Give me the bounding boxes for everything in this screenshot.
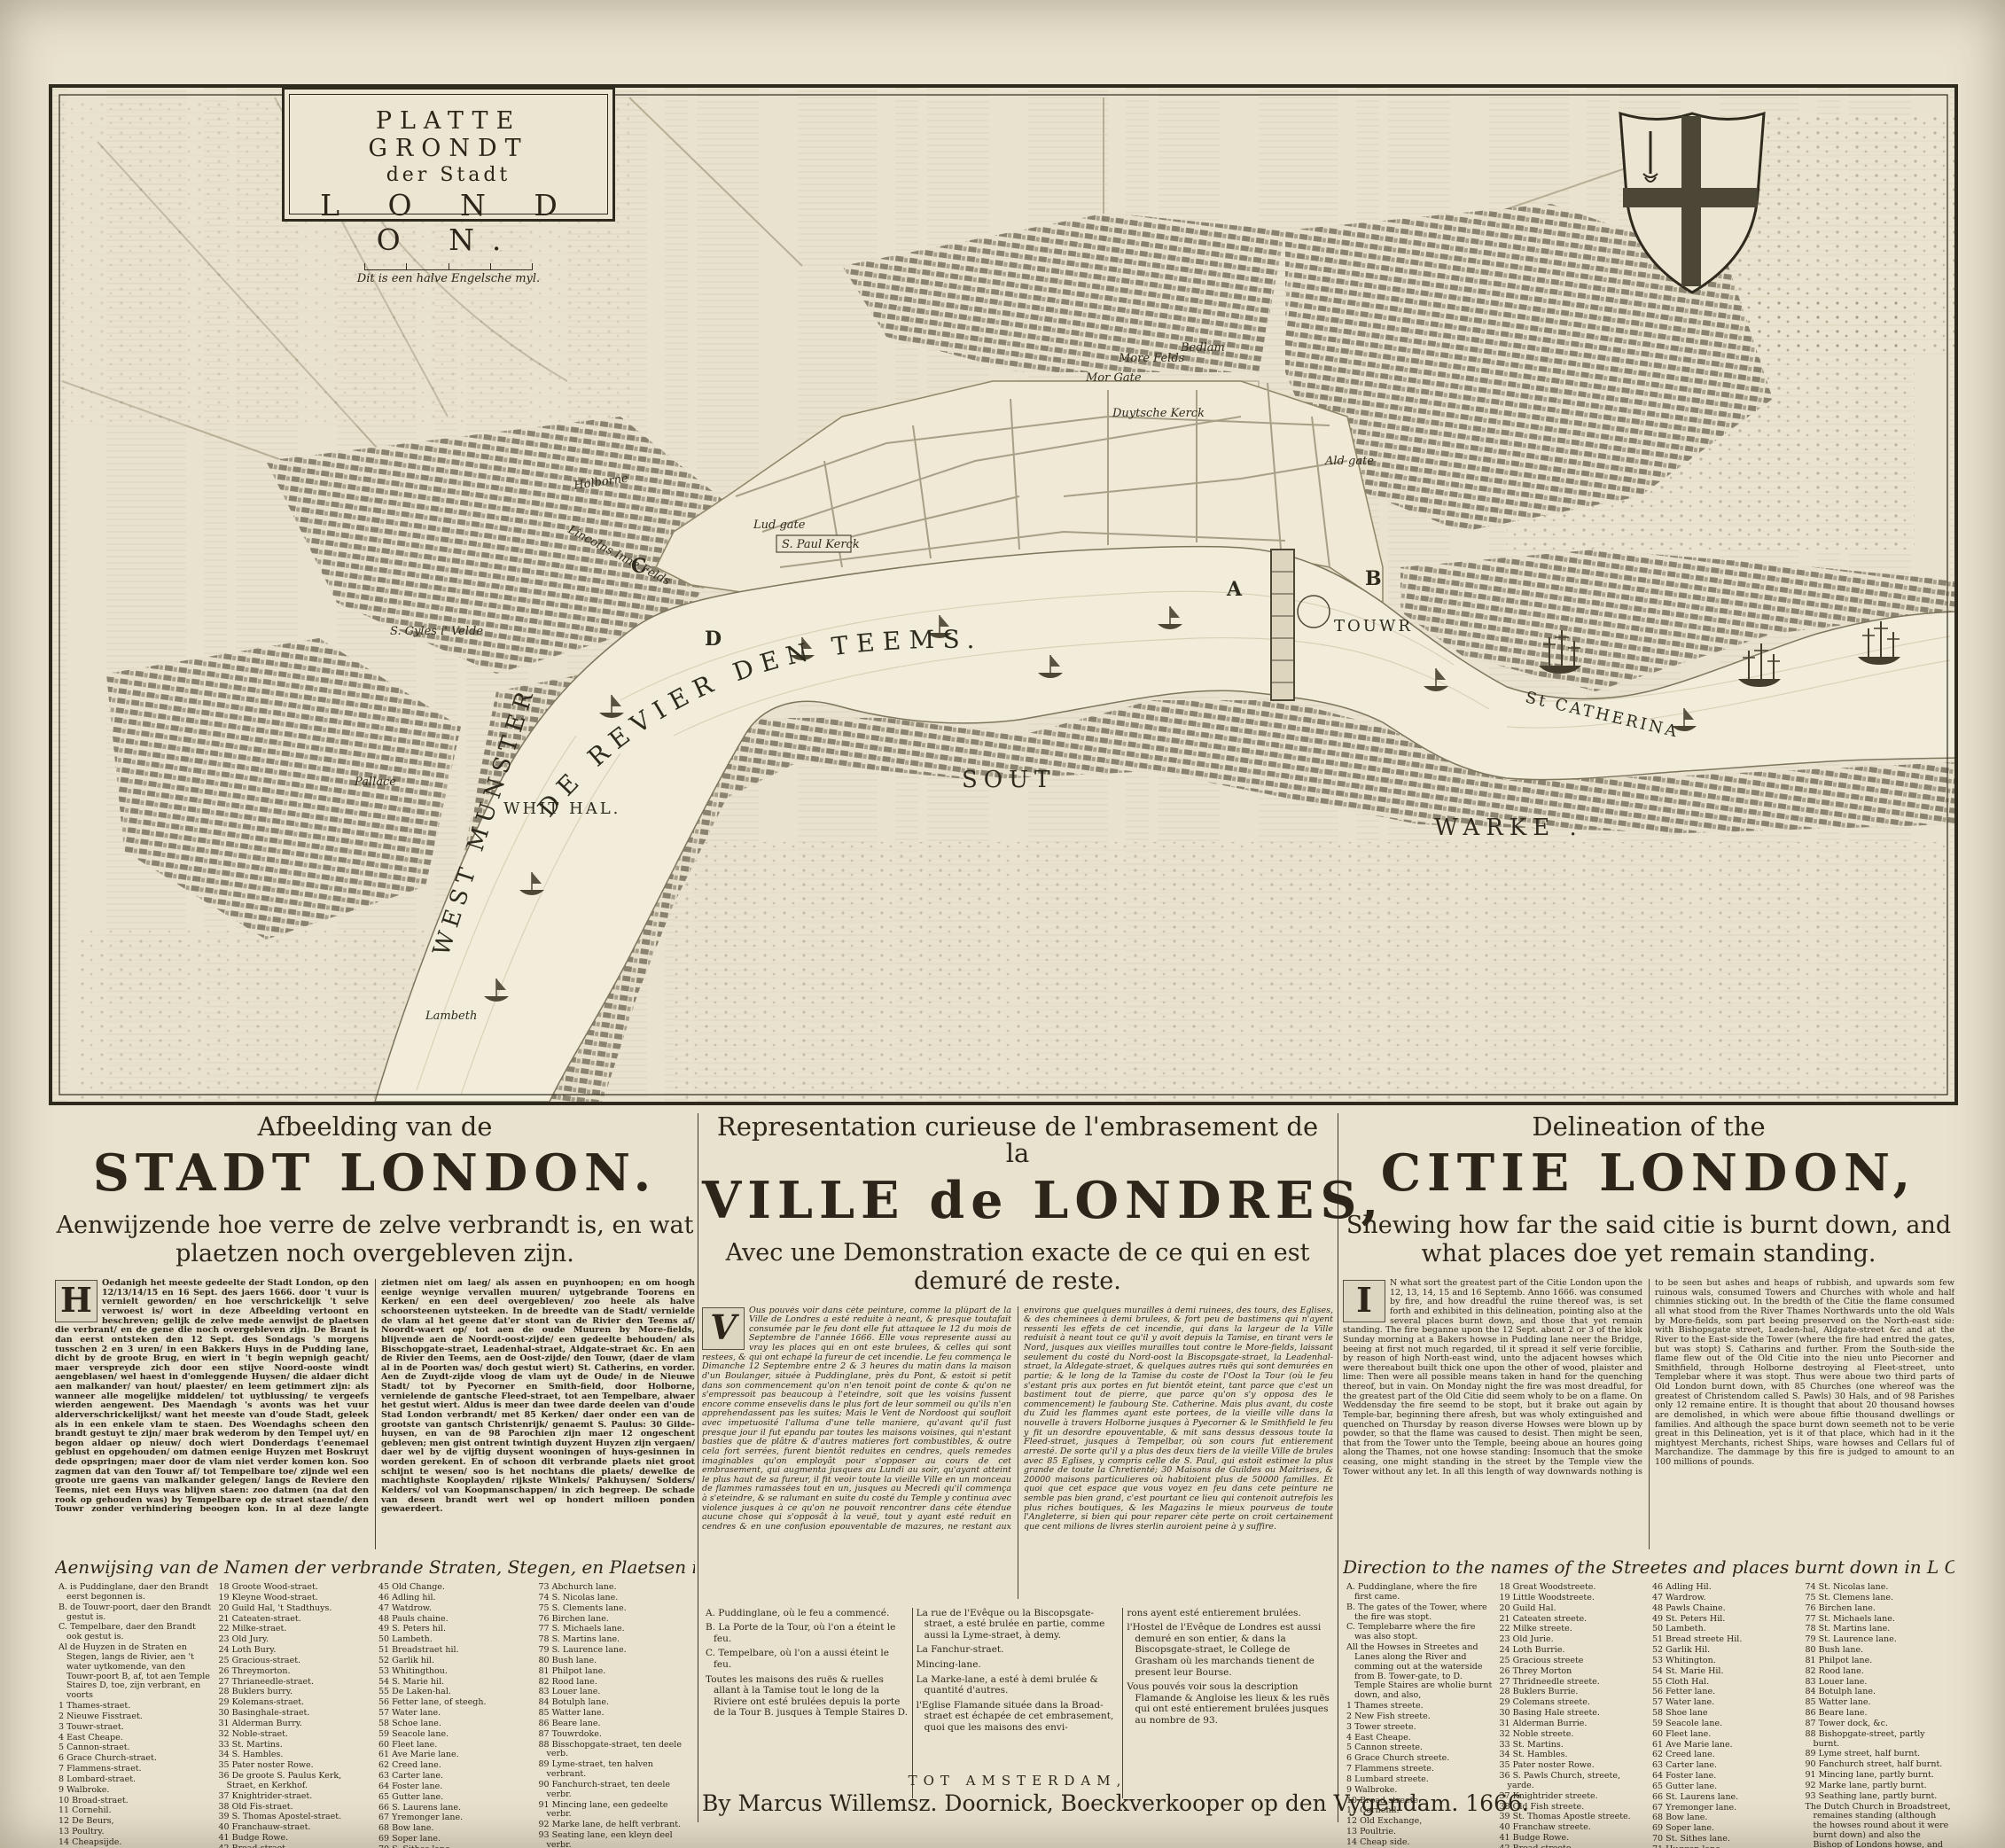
column-dutch: Afbeelding van de STADT LONDON. Aenwijze… xyxy=(55,1113,695,1848)
list-item: 66 St. Laurens lane. xyxy=(1652,1793,1798,1803)
list-item: 6 Grace Church-straet. xyxy=(59,1754,212,1764)
list-item: 74 St. Nicolas lane. xyxy=(1806,1583,1952,1593)
list-item: 31 Alderman Burrie. xyxy=(1500,1719,1646,1729)
list-item: 63 Carter lane. xyxy=(378,1772,532,1782)
list-item: 67 Yremonger lane. xyxy=(1652,1804,1798,1813)
dutch-list-col1: A. is Puddinglane, daer den Brandt eerst… xyxy=(55,1583,215,1848)
list-item: 92 Marke lane, de helft verbrant. xyxy=(539,1821,692,1830)
list-item: 25 Gracious-straet. xyxy=(219,1657,372,1666)
list-item: 51 Bread streete Hil. xyxy=(1652,1635,1798,1645)
english-list-col1: A. Puddinglane, where the fire first cam… xyxy=(1343,1583,1496,1848)
list-item: 32 Noble streete. xyxy=(1500,1730,1646,1740)
list-item: 53 Whitingthou. xyxy=(378,1667,532,1677)
list-item: 6 Grace Church streete. xyxy=(1346,1754,1493,1764)
list-item: 45 Old Change. xyxy=(378,1583,532,1593)
list-item: 81 Philpot lane. xyxy=(539,1667,692,1677)
list-item: C. Tempelbare, daer den Brandt ook gestu… xyxy=(59,1623,212,1642)
list-item: 52 Garlik hil. xyxy=(378,1657,532,1666)
list-item: 37 Knightrider-straet. xyxy=(219,1792,372,1802)
imprint-publisher: By Marcus Willemsz. Doornick, Boeckverko… xyxy=(702,1790,1333,1816)
list-item: 56 Fetter lane, of steegh. xyxy=(378,1698,532,1708)
map-panel: DE REVIER DEN TEEMS. WHIT HAL. WEST MUNS… xyxy=(0,0,2005,1108)
list-item: 8 Lombard-straet. xyxy=(59,1775,212,1785)
list-item: 52 Garlik Hil. xyxy=(1652,1646,1798,1656)
list-item: 60 Fleet lane. xyxy=(378,1741,532,1751)
list-item: 55 Cloth Hal. xyxy=(1652,1678,1798,1688)
list-item: 25 Gracious streete xyxy=(1500,1657,1646,1666)
list-item: 86 Beare lane. xyxy=(539,1719,692,1729)
french-list-col1: A. Puddinglane, où le feu a commencé.B. … xyxy=(702,1608,912,1798)
list-item: 7 Flammens-straet. xyxy=(59,1765,212,1774)
list-item: 29 Kolemans-straet. xyxy=(219,1698,372,1708)
column-rule-left xyxy=(698,1113,698,1822)
list-item: 64 Foster lane. xyxy=(1652,1772,1798,1782)
list-item: 64 Foster lane. xyxy=(378,1782,532,1792)
list-item: 27 Thrianeedle-straet. xyxy=(219,1678,372,1688)
list-item: 11 Cornehil. xyxy=(59,1806,212,1816)
list-item: 34 S. Hambles. xyxy=(219,1751,372,1760)
list-item: 46 Adling hil. xyxy=(378,1594,532,1603)
list-item: 18 Groote Wood-straet. xyxy=(219,1583,372,1593)
list-item: 42 Bread-straet. xyxy=(219,1844,372,1848)
list-item: 5 Cannon streete. xyxy=(1346,1743,1493,1753)
list-item: 77 St. Michaels lane. xyxy=(1806,1615,1952,1625)
list-item: 21 Cateaten streete. xyxy=(1500,1615,1646,1625)
french-body-text: Ous pouvés voir dans cète peinture, comm… xyxy=(702,1306,1333,1532)
english-dropcap: I xyxy=(1343,1280,1385,1322)
english-body: I N what sort the greatest part of the C… xyxy=(1343,1279,1954,1549)
french-subtitle: Avec une Demonstration exacte de ce qui … xyxy=(702,1239,1333,1296)
list-item: 13 Poultrie. xyxy=(1346,1828,1493,1837)
list-item: A. Puddinglane, où le feu a commencé. xyxy=(706,1608,909,1619)
list-item: 23 Old Jury. xyxy=(219,1635,372,1645)
list-item: 22 Milke streete. xyxy=(1500,1625,1646,1634)
list-item: 3 Touwr-straet. xyxy=(59,1723,212,1733)
label-moorfields: More Felds xyxy=(1118,352,1185,365)
list-item: 89 Lyme-straet, ten halven verbrant. xyxy=(539,1760,692,1780)
list-item: 76 Birchen lane. xyxy=(539,1615,692,1625)
list-item: 3 Tower streete. xyxy=(1346,1723,1493,1733)
list-item: 40 Franchauw-straet. xyxy=(219,1823,372,1833)
french-body: V Ous pouvés voir dans cète peinture, co… xyxy=(702,1306,1333,1599)
list-item: 54 S. Marie hil. xyxy=(378,1678,532,1688)
list-item: 29 Colemans streete. xyxy=(1500,1698,1646,1708)
st-pauls-label: S. Paul Kerck xyxy=(776,535,860,552)
list-item: 89 Lyme street, half burnt. xyxy=(1806,1750,1952,1759)
list-item: 86 Beare lane. xyxy=(1806,1709,1952,1719)
dutch-list-col4: 73 Abchurch lane.74 S. Nicolas lane.75 S… xyxy=(535,1583,696,1848)
label-whitehall: WHIT HAL. xyxy=(503,799,620,818)
list-item: 9 Walbroke. xyxy=(59,1786,212,1796)
list-item: 27 Thridneedle streete. xyxy=(1500,1678,1646,1688)
english-list-col4: 74 St. Nicolas lane.75 St. Clemens lane.… xyxy=(1802,1583,1955,1848)
list-item: 19 Little Woodstreete. xyxy=(1500,1594,1646,1603)
column-french: Representation curieuse de l'embrasement… xyxy=(702,1113,1333,1798)
list-item: All the Howses in Streetes and Lanes alo… xyxy=(1346,1643,1493,1701)
list-item: 81 Philpot lane. xyxy=(1806,1657,1952,1666)
marker-a: A xyxy=(1226,578,1243,601)
list-item: 93 Seathing lane, partly burnt. xyxy=(1806,1792,1952,1802)
label-lambeth: Lambeth xyxy=(425,1010,477,1023)
list-item: 9 Walbroke. xyxy=(1346,1786,1493,1796)
list-item: 67 Yremonger lane. xyxy=(378,1813,532,1823)
list-item: Mincing-lane. xyxy=(917,1659,1120,1671)
list-item: 50 Lambeth. xyxy=(1652,1625,1798,1634)
list-item: 51 Breadstraet hil. xyxy=(378,1646,532,1656)
scale-bar xyxy=(364,262,533,270)
map-title-line2: der Stadt xyxy=(290,164,607,186)
list-item: 61 Ave Marie lane. xyxy=(1652,1741,1798,1751)
dutch-body: H Oedanigh het meeste gedeelte der Stadt… xyxy=(55,1279,695,1549)
label-pallace: Pallace xyxy=(354,776,396,789)
list-item: Toutes les maisons des ruës & ruelles al… xyxy=(706,1674,909,1719)
dutch-title: STADT LONDON. xyxy=(55,1143,695,1203)
label-dutch-church: Duytsche Kerck xyxy=(1112,407,1205,420)
list-item: 46 Adling Hil. xyxy=(1652,1583,1798,1593)
list-item: 40 Franchaw streete. xyxy=(1500,1823,1646,1833)
list-item: 68 Bow lane. xyxy=(378,1824,532,1834)
list-item: 75 St. Clemens lane. xyxy=(1806,1594,1952,1603)
list-item: 57 Water lane. xyxy=(1652,1698,1798,1708)
list-item: C. Tempelbare, où l'on a aussi éteint le… xyxy=(706,1648,909,1670)
dutch-list-col3: 45 Old Change.46 Adling hil.47 Watdrow.4… xyxy=(375,1583,535,1848)
french-head: Representation curieuse de l'embrasement… xyxy=(702,1113,1333,1167)
list-item: 75 S. Clements lane. xyxy=(539,1604,692,1614)
dutch-street-list: A. is Puddinglane, daer den Brandt eerst… xyxy=(55,1583,695,1848)
list-item: 78 St. Martins lane. xyxy=(1806,1625,1952,1634)
list-item: A. is Puddinglane, daer den Brandt eerst… xyxy=(59,1583,212,1602)
list-item: C. Templebarre where the fire was also s… xyxy=(1346,1623,1493,1642)
list-item: 80 Bush lane. xyxy=(1806,1646,1952,1656)
list-item: 48 Pawls Chaine. xyxy=(1652,1604,1798,1614)
imprint-city: TOT AMSTERDAM, xyxy=(702,1773,1333,1789)
list-item: rons ayent esté entierement brulées. xyxy=(1127,1608,1330,1619)
list-item: 90 Fanchurch street, half burnt. xyxy=(1806,1760,1952,1770)
list-item: 60 Fleet lane. xyxy=(1652,1730,1798,1740)
list-item: B. The gates of the Tower, where the fir… xyxy=(1346,1603,1493,1623)
list-item: 4 East Cheape. xyxy=(1346,1734,1493,1743)
list-item: 36 De groote S. Paulus Kerk, Straet, en … xyxy=(219,1772,372,1791)
list-item: 36 S. Pawls Church, streete, yarde. xyxy=(1500,1772,1646,1791)
english-street-list: A. Puddinglane, where the fire first cam… xyxy=(1343,1583,1954,1848)
list-item: A. Puddinglane, where the fire first cam… xyxy=(1346,1583,1493,1602)
title-cartouche: PLATTE GRONDT der Stadt L O N D O N. Dit… xyxy=(282,87,615,222)
list-item: 26 Threy Morton xyxy=(1500,1667,1646,1677)
list-item: 87 Tower dock, &c. xyxy=(1806,1719,1952,1729)
english-list-col3: 46 Adling Hil.47 Wardrow.48 Pawls Chaine… xyxy=(1649,1583,1802,1848)
list-item: 59 Seacole lane. xyxy=(378,1730,532,1740)
list-item: 92 Marke lane, partly burnt. xyxy=(1806,1782,1952,1791)
list-item: 39 St. Thomas Apostle streete. xyxy=(1500,1813,1646,1822)
dutch-list-col2: 18 Groote Wood-straet.19 Kleyne Wood-str… xyxy=(215,1583,376,1848)
label-st-paul: S. Paul Kerck xyxy=(782,538,860,551)
dutch-head: Afbeelding van de xyxy=(55,1113,695,1140)
english-head: Delineation of the xyxy=(1343,1113,1954,1140)
list-item: 2 New Fish streete. xyxy=(1346,1712,1493,1722)
list-item: 93 Seating lane, een kleyn deel verbr. xyxy=(539,1831,692,1848)
list-item: 85 Watter lane. xyxy=(1806,1698,1952,1708)
list-item: 85 Watter lane. xyxy=(539,1709,692,1719)
list-item: 47 Watdrow. xyxy=(378,1604,532,1614)
list-item: Vous pouvés voir sous la description Fla… xyxy=(1127,1681,1330,1726)
label-tower: TOUWR xyxy=(1334,617,1413,635)
list-item: 65 Gutter lane. xyxy=(1652,1782,1798,1792)
list-item: 14 Cheapsijde. xyxy=(59,1838,212,1848)
list-item: 62 Creed lane. xyxy=(378,1761,532,1771)
list-item: 5 Cannon-straet. xyxy=(59,1743,212,1753)
marker-b: B xyxy=(1365,567,1382,590)
list-item: 76 Birchen lane. xyxy=(1806,1604,1952,1614)
english-subtitle: Shewing how far the said citie is burnt … xyxy=(1343,1212,1954,1268)
list-item: 19 Kleyne Wood-straet. xyxy=(219,1594,372,1603)
list-item: 48 Pauls chaine. xyxy=(378,1615,532,1625)
list-item: 83 Louer lane. xyxy=(1806,1678,1952,1688)
list-item: 32 Noble-straet. xyxy=(219,1730,372,1740)
list-item: 47 Wardrow. xyxy=(1652,1594,1798,1603)
list-item: 69 Soper lane. xyxy=(1652,1824,1798,1834)
list-item: 77 S. Michaels lane. xyxy=(539,1625,692,1634)
list-item: 49 St. Peters Hil. xyxy=(1652,1615,1798,1625)
list-item: 10 Broad streete. xyxy=(1346,1797,1493,1806)
list-item: 26 Threymorton. xyxy=(219,1667,372,1677)
list-item: 58 Shoe lane xyxy=(1652,1709,1798,1719)
list-item: 7 Flammens streete. xyxy=(1346,1765,1493,1774)
list-item: 12 De Beurs, xyxy=(59,1817,212,1827)
french-list-col3: rons ayent esté entierement brulées.l'Ho… xyxy=(1122,1608,1333,1798)
list-item: 13 Poultry. xyxy=(59,1828,212,1837)
label-sout: SOUT xyxy=(962,767,1056,793)
list-item: 56 Fetter lane. xyxy=(1652,1688,1798,1697)
list-item: 20 Guild Hal, 't Stadthuys. xyxy=(219,1604,372,1614)
list-item: 1 Thames-straet. xyxy=(59,1702,212,1712)
cartouche-inner-frame: PLATTE GRONDT der Stadt L O N D O N. Dit… xyxy=(289,94,608,214)
list-item: 74 S. Nicolas lane. xyxy=(539,1594,692,1603)
list-item: 38 Old Fis-straet. xyxy=(219,1803,372,1813)
list-item: 10 Broad-straet. xyxy=(59,1797,212,1806)
list-item: 42 Bread streete. xyxy=(1500,1844,1646,1848)
label-warke: WARKE . xyxy=(1434,815,1583,841)
engraved-map-sheet: DE REVIER DEN TEEMS. WHIT HAL. WEST MUNS… xyxy=(0,0,2005,1848)
list-item: 22 Milke-straet. xyxy=(219,1625,372,1634)
list-item: 2 Nieuwe Fisstraet. xyxy=(59,1712,212,1722)
list-item: 91 Mincing lane, een gedeelte verbr. xyxy=(539,1801,692,1821)
list-item: 28 Buklers burry. xyxy=(219,1688,372,1697)
list-item: 20 Guild Hal. xyxy=(1500,1604,1646,1614)
imprint: TOT AMSTERDAM, By Marcus Willemsz. Doorn… xyxy=(702,1773,1333,1816)
list-item: 23 Old Jurie. xyxy=(1500,1635,1646,1645)
list-item: 41 Budge Rowe. xyxy=(1500,1834,1646,1844)
list-item: 14 Cheap side. xyxy=(1346,1838,1493,1848)
column-english: Delineation of the CITIE LONDON, Shewing… xyxy=(1343,1113,1954,1848)
list-item: 87 Touwrdoke. xyxy=(539,1730,692,1740)
list-item: 1 Thames streete. xyxy=(1346,1702,1493,1712)
label-aldgate: Ald gate xyxy=(1324,455,1374,468)
list-item: 35 Pater noster Rowe. xyxy=(219,1761,372,1771)
list-item: 12 Old Exchange, xyxy=(1346,1817,1493,1827)
marker-c: C xyxy=(631,555,647,578)
list-item: 70 St. Sithes lane. xyxy=(1652,1835,1798,1844)
english-list-col2: 18 Great Woodstreete.19 Little Woodstree… xyxy=(1496,1583,1650,1848)
list-item: La rue de l'Evêque ou la Biscopsgate-str… xyxy=(917,1608,1120,1641)
list-item: 73 Abchurch lane. xyxy=(539,1583,692,1593)
list-item: 65 Gutter lane. xyxy=(378,1793,532,1803)
list-item: 82 Rood lane. xyxy=(1806,1667,1952,1677)
list-item: 82 Rood lane. xyxy=(539,1678,692,1688)
list-item: La Fanchur-straet. xyxy=(917,1644,1120,1656)
french-list-col2: La rue de l'Evêque ou la Biscopsgate-str… xyxy=(912,1608,1123,1798)
dutch-dropcap: H xyxy=(55,1280,98,1322)
list-item: 21 Cateaten-straet. xyxy=(219,1615,372,1625)
english-body-text: N what sort the greatest part of the Cit… xyxy=(1343,1279,1954,1477)
label-moorgate: Mor Gate xyxy=(1085,371,1142,385)
list-item: 24 Loth Bury. xyxy=(219,1646,372,1656)
list-item: 30 Basing Hale streete. xyxy=(1500,1709,1646,1719)
list-item: B. de Touwr-poort, daer den Brandt gestu… xyxy=(59,1603,212,1623)
list-item: 35 Pater noster Rowe. xyxy=(1500,1761,1646,1771)
list-item: 55 De Laken-hal. xyxy=(378,1688,532,1697)
list-item: 53 Whitington. xyxy=(1652,1657,1798,1666)
list-item: 68 Bow lane. xyxy=(1652,1813,1798,1823)
list-item: 39 S. Thomas Apostel-straet. xyxy=(219,1813,372,1822)
list-item: 62 Creed lane. xyxy=(1652,1751,1798,1760)
list-item: 37 Knightrider streete. xyxy=(1500,1792,1646,1802)
french-title: VILLE de LONDRES, xyxy=(702,1171,1333,1230)
list-item: 80 Bush lane. xyxy=(539,1657,692,1666)
list-item: 28 Buklers Burrie. xyxy=(1500,1688,1646,1697)
list-item: 84 Botulph lane. xyxy=(1806,1688,1952,1697)
list-item: 4 East Cheape. xyxy=(59,1734,212,1743)
list-item: Al de Huyzen in de Straten en Stegen, la… xyxy=(59,1643,212,1701)
list-item: 63 Carter lane. xyxy=(1652,1761,1798,1771)
list-item: 49 S. Peters hil. xyxy=(378,1625,532,1634)
list-item: 33 St. Martins. xyxy=(219,1741,372,1751)
dutch-body-text: Oedanigh het meeste gedeelte der Stadt L… xyxy=(55,1279,695,1514)
label-ludgate: Lud gate xyxy=(753,519,806,532)
list-item: 24 Loth Burrie. xyxy=(1500,1646,1646,1656)
list-item: 59 Seacole lane. xyxy=(1652,1719,1798,1729)
list-item: 79 S. Laurence lane. xyxy=(539,1646,692,1656)
dutch-list-header: Aenwijsing van de Namen der verbrande St… xyxy=(55,1556,695,1578)
dutch-subtitle: Aenwijzende hoe verre de zelve verbrandt… xyxy=(55,1212,695,1268)
list-item: La Marke-lane, a esté à demi brulée & qu… xyxy=(917,1674,1120,1696)
map-title-line3: L O N D O N. xyxy=(290,188,607,257)
french-notes: A. Puddinglane, où le feu a commencé.B. … xyxy=(702,1608,1333,1798)
french-dropcap: V xyxy=(702,1307,745,1350)
list-item: 54 St. Marie Hil. xyxy=(1652,1667,1798,1677)
list-item: 41 Budge Rowe. xyxy=(219,1834,372,1844)
list-item: B. La Porte de la Tour, où l'on a éteint… xyxy=(706,1622,909,1644)
list-item: 8 Lumbard streete. xyxy=(1346,1775,1493,1785)
list-item: 33 St. Martins. xyxy=(1500,1741,1646,1751)
list-item: 84 Botulph lane. xyxy=(539,1698,692,1708)
list-item: 88 Bishopgate-street, partly burnt. xyxy=(1806,1730,1952,1750)
list-item: 90 Fanchurch-straet, ten deele verbr. xyxy=(539,1781,692,1800)
list-item: l'Hostel de l'Evêque de Londres est auss… xyxy=(1127,1622,1330,1678)
list-item: l'Eglise Flamande située dans la Broad-s… xyxy=(917,1700,1120,1734)
list-item: 18 Great Woodstreete. xyxy=(1500,1583,1646,1593)
scale-note: Dit is een halve Engelsche myl. xyxy=(290,272,607,285)
english-list-header: Direction to the names of the Streetes a… xyxy=(1343,1556,1954,1578)
list-item: 88 Bisschopgate-straet, ten deele verb. xyxy=(539,1741,692,1760)
list-item: 31 Alderman Burry. xyxy=(219,1719,372,1729)
list-item: 50 Lambeth. xyxy=(378,1635,532,1645)
list-item: The Dutch Church in Broadstreet, remaine… xyxy=(1806,1803,1952,1848)
list-item: 69 Soper lane. xyxy=(378,1835,532,1844)
list-item: 30 Basinghale-straet. xyxy=(219,1709,372,1719)
list-item: 57 Water lane. xyxy=(378,1709,532,1719)
list-item: 91 Mincing lane, partly burnt. xyxy=(1806,1771,1952,1781)
list-item: 79 St. Laurence lane. xyxy=(1806,1635,1952,1645)
marker-d: D xyxy=(705,628,722,651)
list-item: 58 Schoe lane. xyxy=(378,1719,532,1729)
english-title: CITIE LONDON, xyxy=(1343,1143,1954,1203)
list-item: 38 Old Fish streete. xyxy=(1500,1803,1646,1813)
list-item: 78 S. Martins lane. xyxy=(539,1635,692,1645)
list-item: 34 St. Hambles. xyxy=(1500,1751,1646,1760)
map-title-line1: PLATTE GRONDT xyxy=(290,107,607,162)
list-item: 61 Ave Marie lane. xyxy=(378,1751,532,1760)
label-s-gyles: S. Gyles i' Velde xyxy=(390,625,483,638)
label-bedlam: Bedlam xyxy=(1180,341,1225,355)
list-item: 11 Cornehil. xyxy=(1346,1806,1493,1816)
list-item: 66 S. Laurens lane. xyxy=(378,1804,532,1813)
list-item: 83 Louer lane. xyxy=(539,1688,692,1697)
